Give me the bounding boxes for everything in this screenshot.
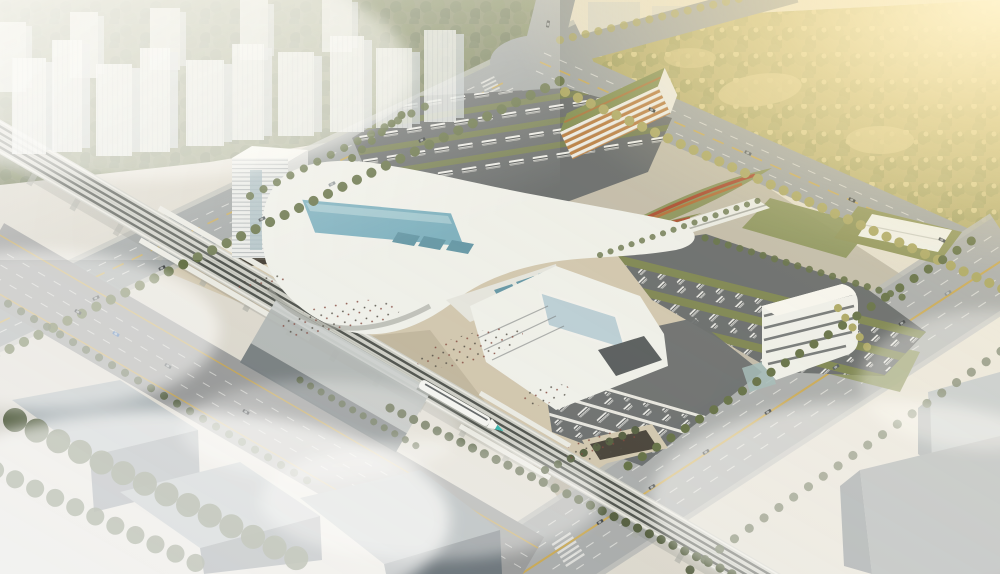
rendering-canvas — [0, 0, 1000, 574]
aerial-rendering — [0, 0, 1000, 574]
sun-glow — [420, 0, 1000, 320]
